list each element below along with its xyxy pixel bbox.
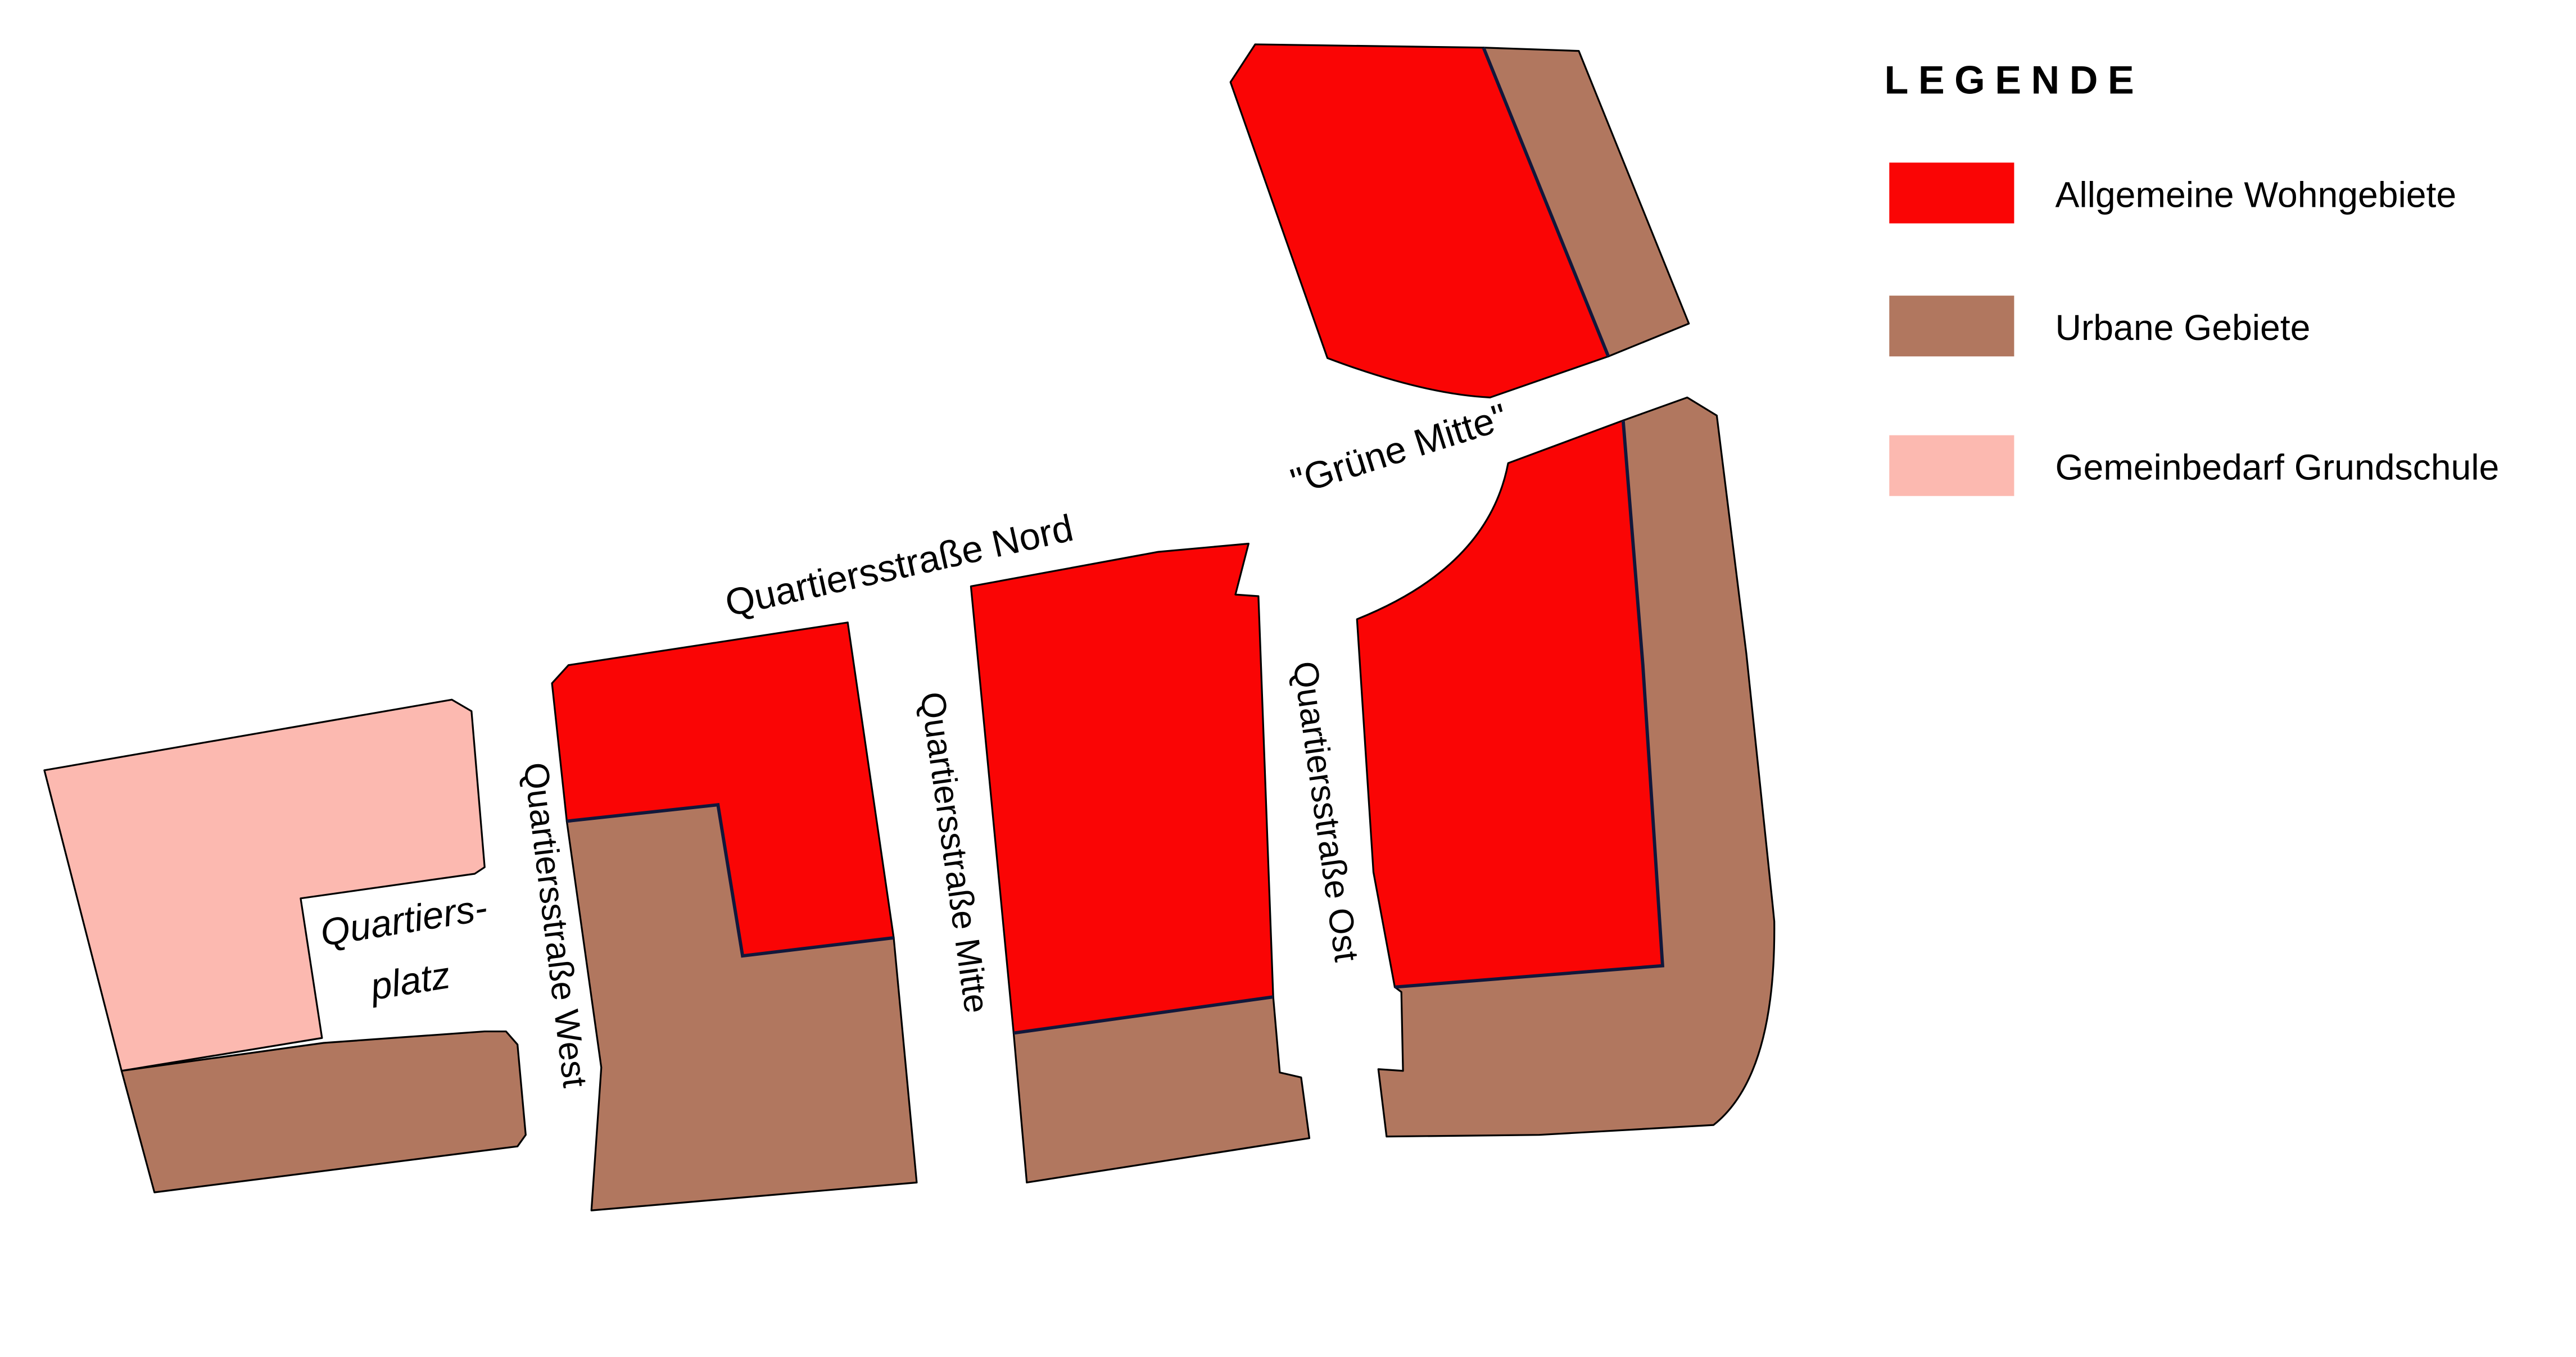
street-label-gruene-mitte: "Grüne Mitte": [1286, 396, 1513, 503]
zoning-plan-page: Quartiersstraße Nord "Grüne Mitte" Quart…: [0, 0, 2576, 1356]
legend-item-residential: Allgemeine Wohngebiete: [1889, 162, 2456, 223]
zoning-map: [44, 44, 1774, 1210]
legend-item-urban-label: Urbane Gebiete: [2055, 307, 2310, 348]
street-labels: Quartiersstraße Nord "Grüne Mitte" Quart…: [318, 396, 1513, 1090]
legend-item-urban: Urbane Gebiete: [1889, 296, 2310, 356]
legend-swatch-residential: [1889, 162, 2014, 223]
place-label-quartiersplatz-line2: platz: [366, 954, 453, 1009]
zoning-plan-drawing: Quartiersstraße Nord "Grüne Mitte" Quart…: [0, 0, 2576, 1356]
place-label-quartiersplatz-line1: Quartiers-: [318, 887, 490, 955]
legend-swatch-urban: [1889, 296, 2014, 356]
area-school-pink: [44, 700, 485, 1071]
legend: LEGENDE Allgemeine Wohngebiete Urbane Ge…: [1884, 58, 2499, 496]
area-mitte-block-residential: [971, 543, 1273, 1033]
legend-item-school-label: Gemeinbedarf Grundschule: [2055, 447, 2499, 487]
area-ost-block-residential: [1357, 420, 1663, 987]
legend-swatch-school: [1889, 435, 2014, 496]
legend-item-school: Gemeinbedarf Grundschule: [1889, 435, 2499, 496]
street-label-mitte: Quartiersstraße Mitte: [913, 689, 997, 1015]
legend-title: LEGENDE: [1884, 58, 2144, 102]
street-label-ost: Quartiersstraße Ost: [1285, 659, 1366, 964]
legend-item-residential-label: Allgemeine Wohngebiete: [2055, 174, 2456, 215]
